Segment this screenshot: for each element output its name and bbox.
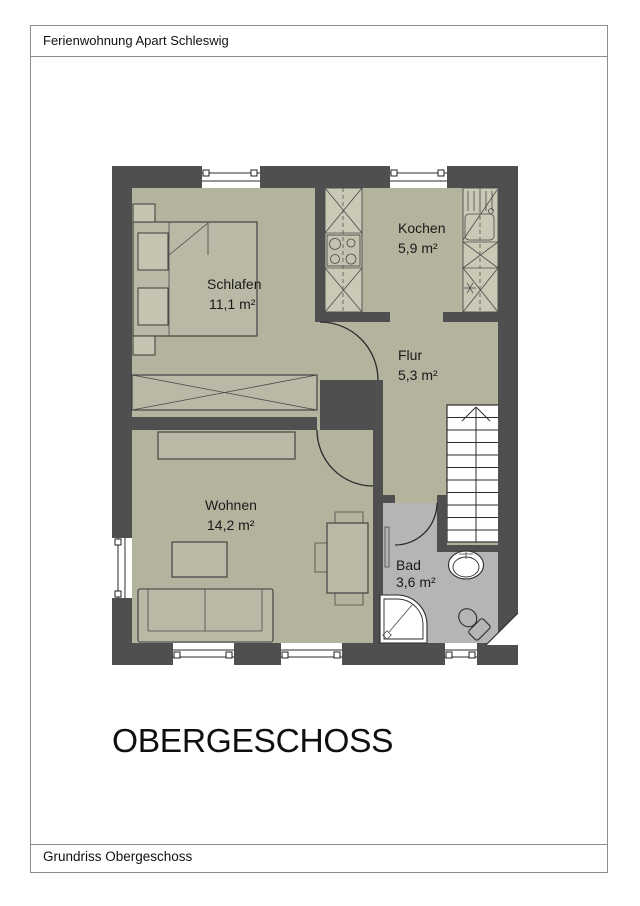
label-schlafen: Schlafen	[207, 276, 261, 292]
wardrobe	[132, 375, 317, 410]
staircase	[447, 405, 500, 542]
counter-left	[325, 188, 362, 312]
sofa	[138, 589, 273, 642]
window-wohnen-bottom-1	[173, 643, 234, 665]
coffee-table	[172, 542, 227, 577]
label-bad: Bad	[396, 557, 421, 573]
label-wohnen: Wohnen	[205, 497, 257, 513]
pillow	[138, 288, 168, 325]
floorplan: Schlafen 11,1 m² Kochen 5,9 m² Flur 5,3 …	[0, 0, 640, 906]
wall-stairs-left	[437, 495, 447, 552]
window-kochen-top	[390, 166, 447, 188]
wall-hall-pier	[320, 380, 383, 430]
stair-flight	[447, 405, 500, 542]
counter-right	[463, 188, 498, 312]
window-wohnen-bottom-2	[281, 643, 342, 665]
label-bad-area: 3,6 m²	[396, 574, 436, 590]
wall-kitchen-left	[315, 188, 325, 322]
wall-schlafen-wohnen	[132, 417, 317, 430]
label-wohnen-area: 14,2 m²	[207, 517, 255, 533]
nightstand	[133, 204, 155, 222]
window-wohnen-left	[112, 538, 132, 598]
label-schlafen-area: 11,1 m²	[209, 296, 256, 312]
wall-top	[112, 166, 518, 188]
sideboard	[158, 432, 295, 459]
nightstand	[133, 336, 155, 355]
dining-table	[327, 523, 368, 593]
wall-below-kitchen-left	[315, 312, 390, 322]
label-flur-area: 5,3 m²	[398, 367, 438, 383]
window-schlafen-top	[202, 166, 260, 188]
label-kochen-area: 5,9 m²	[398, 240, 438, 256]
label-flur: Flur	[398, 347, 422, 363]
pillow	[138, 233, 168, 270]
wall-bad-top-stub	[383, 495, 395, 503]
wall-right	[498, 166, 518, 665]
label-kochen: Kochen	[398, 220, 445, 236]
wall-below-kitchen-right	[443, 312, 498, 322]
window-bad-bottom	[445, 643, 477, 665]
